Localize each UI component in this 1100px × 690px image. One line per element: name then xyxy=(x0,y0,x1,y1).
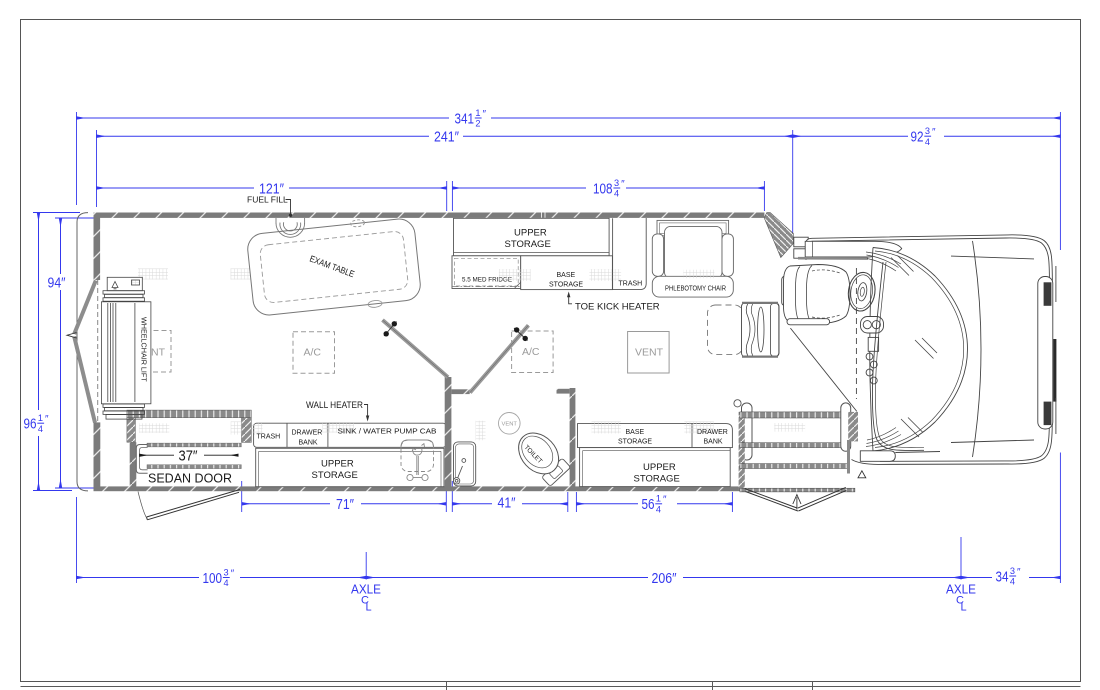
svg-text:3: 3 xyxy=(224,567,229,577)
svg-text:TOE KICK HEATER: TOE KICK HEATER xyxy=(575,302,660,313)
svg-text:TRASH: TRASH xyxy=(619,281,643,288)
svg-text:″: ″ xyxy=(483,109,487,120)
svg-text:SEDAN DOOR: SEDAN DOOR xyxy=(148,471,232,485)
svg-text:108: 108 xyxy=(593,180,613,197)
svg-text:″: ″ xyxy=(932,127,936,138)
svg-text:UPPER: UPPER xyxy=(643,462,676,473)
svg-text:BASE: BASE xyxy=(557,272,576,279)
svg-text:71″: 71″ xyxy=(336,496,354,513)
svg-text:100: 100 xyxy=(203,570,223,587)
svg-text:92: 92 xyxy=(911,129,924,146)
svg-text:4: 4 xyxy=(224,578,229,588)
svg-text:VENT: VENT xyxy=(635,347,664,359)
svg-text:56: 56 xyxy=(642,496,655,513)
svg-text:4: 4 xyxy=(1010,577,1015,587)
svg-text:3: 3 xyxy=(614,178,619,188)
svg-text:1: 1 xyxy=(38,413,43,423)
svg-text:A/C: A/C xyxy=(304,347,322,359)
svg-text:34: 34 xyxy=(996,568,1009,585)
svg-text:TRASH: TRASH xyxy=(257,434,281,441)
svg-text:37″: 37″ xyxy=(179,447,199,464)
svg-text:DRAWER: DRAWER xyxy=(292,430,323,437)
svg-text:UPPER: UPPER xyxy=(514,228,547,239)
svg-text:3: 3 xyxy=(925,126,930,136)
svg-text:2: 2 xyxy=(475,119,480,129)
svg-text:4: 4 xyxy=(925,137,930,147)
svg-text:241″: 241″ xyxy=(434,129,460,146)
svg-text:STORAGE: STORAGE xyxy=(618,439,652,446)
svg-text:FUEL FILL: FUEL FILL xyxy=(247,195,288,205)
svg-text:96: 96 xyxy=(24,416,37,433)
svg-text:4: 4 xyxy=(614,189,619,199)
svg-text:206″: 206″ xyxy=(652,570,678,587)
svg-text:DRAWER: DRAWER xyxy=(697,429,728,436)
svg-text:″: ″ xyxy=(1017,567,1021,578)
svg-text:L: L xyxy=(961,602,967,614)
svg-text:WHEELCHAIR LIFT: WHEELCHAIR LIFT xyxy=(140,317,149,382)
svg-text:″: ″ xyxy=(663,495,667,506)
svg-text:″: ″ xyxy=(231,568,235,579)
svg-text:A/C: A/C xyxy=(522,346,540,358)
svg-text:L: L xyxy=(366,602,372,614)
svg-text:BANK: BANK xyxy=(704,439,723,446)
svg-text:SINK / WATER PUMP CAB: SINK / WATER PUMP CAB xyxy=(338,427,437,436)
svg-text:″: ″ xyxy=(45,414,49,425)
svg-text:3: 3 xyxy=(1010,566,1015,576)
svg-text:STORAGE: STORAGE xyxy=(312,470,358,481)
svg-text:UPPER: UPPER xyxy=(321,459,354,470)
svg-text:STORAGE: STORAGE xyxy=(634,474,680,485)
svg-text:BANK: BANK xyxy=(299,440,318,447)
svg-text:PHLEBOTOMY CHAIR: PHLEBOTOMY CHAIR xyxy=(665,286,726,293)
svg-text:1: 1 xyxy=(475,108,480,118)
svg-text:VENT: VENT xyxy=(502,422,518,428)
svg-text:WALL HEATER: WALL HEATER xyxy=(306,400,363,410)
svg-text:4: 4 xyxy=(38,424,43,434)
svg-text:STORAGE: STORAGE xyxy=(505,239,551,250)
svg-text:94″: 94″ xyxy=(48,274,66,291)
svg-text:41″: 41″ xyxy=(498,495,516,512)
svg-text:BASE: BASE xyxy=(626,429,645,436)
svg-text:341: 341 xyxy=(455,110,475,127)
svg-text:″: ″ xyxy=(621,179,625,190)
svg-text:1: 1 xyxy=(656,494,661,504)
svg-text:4: 4 xyxy=(656,504,661,514)
svg-text:STORAGE: STORAGE xyxy=(549,282,583,289)
